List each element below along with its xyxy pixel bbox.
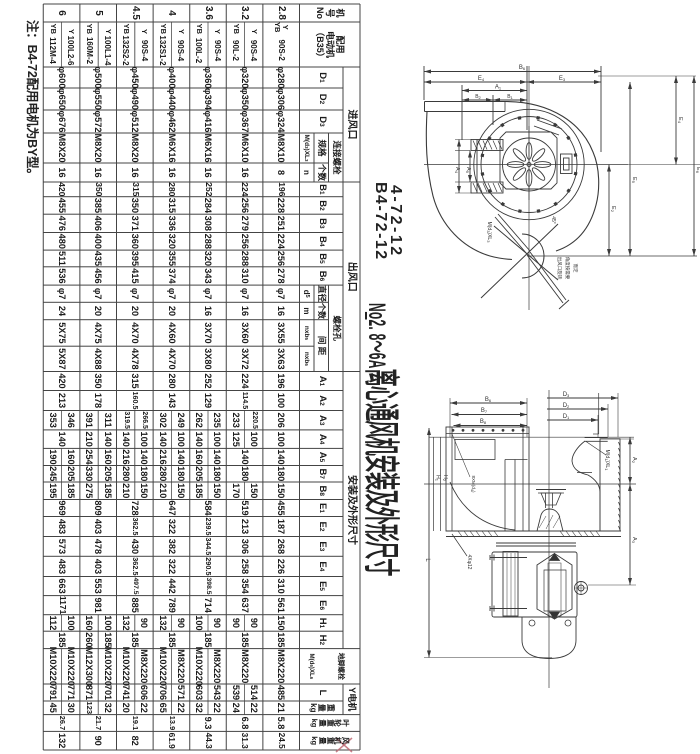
svg-text:B8: B8 xyxy=(480,419,487,425)
svg-text:H1: H1 xyxy=(435,475,441,482)
svg-text:角度按需要: 角度按需要 xyxy=(564,257,571,280)
svg-text:而定: 而定 xyxy=(572,264,579,273)
svg-text:E4: E4 xyxy=(478,76,485,82)
svg-text:E2: E2 xyxy=(610,206,616,213)
svg-text:E6: E6 xyxy=(695,167,700,174)
svg-text:B6: B6 xyxy=(485,397,492,403)
svg-text:D2: D2 xyxy=(563,403,570,409)
svg-text:A1: A1 xyxy=(495,85,502,91)
svg-text:H2: H2 xyxy=(442,475,448,482)
svg-text:D3: D3 xyxy=(563,392,570,398)
svg-text:E3: E3 xyxy=(559,76,566,82)
svg-text:B7: B7 xyxy=(481,408,488,414)
svg-text:A3: A3 xyxy=(631,537,637,544)
svg-text:B6: B6 xyxy=(519,65,526,71)
svg-text:出风口旋转: 出风口旋转 xyxy=(556,257,563,280)
svg-text:E5: E5 xyxy=(631,177,637,184)
svg-text:A4: A4 xyxy=(454,167,460,174)
svg-text:B1: B1 xyxy=(507,94,513,100)
svg-text:4Xφ12: 4Xφ12 xyxy=(466,555,472,570)
svg-text:D1: D1 xyxy=(563,414,570,420)
svg-text:E4: E4 xyxy=(677,117,683,124)
svg-text:M(d1)XL1: M(d1)XL1 xyxy=(604,450,610,472)
svg-text:B2: B2 xyxy=(475,94,481,100)
svg-text:M(d3)XL3: M(d3)XL3 xyxy=(486,222,492,244)
svg-text:A5: A5 xyxy=(465,167,471,174)
svg-text:45°: 45° xyxy=(550,216,556,224)
svg-text:A2: A2 xyxy=(631,457,637,464)
